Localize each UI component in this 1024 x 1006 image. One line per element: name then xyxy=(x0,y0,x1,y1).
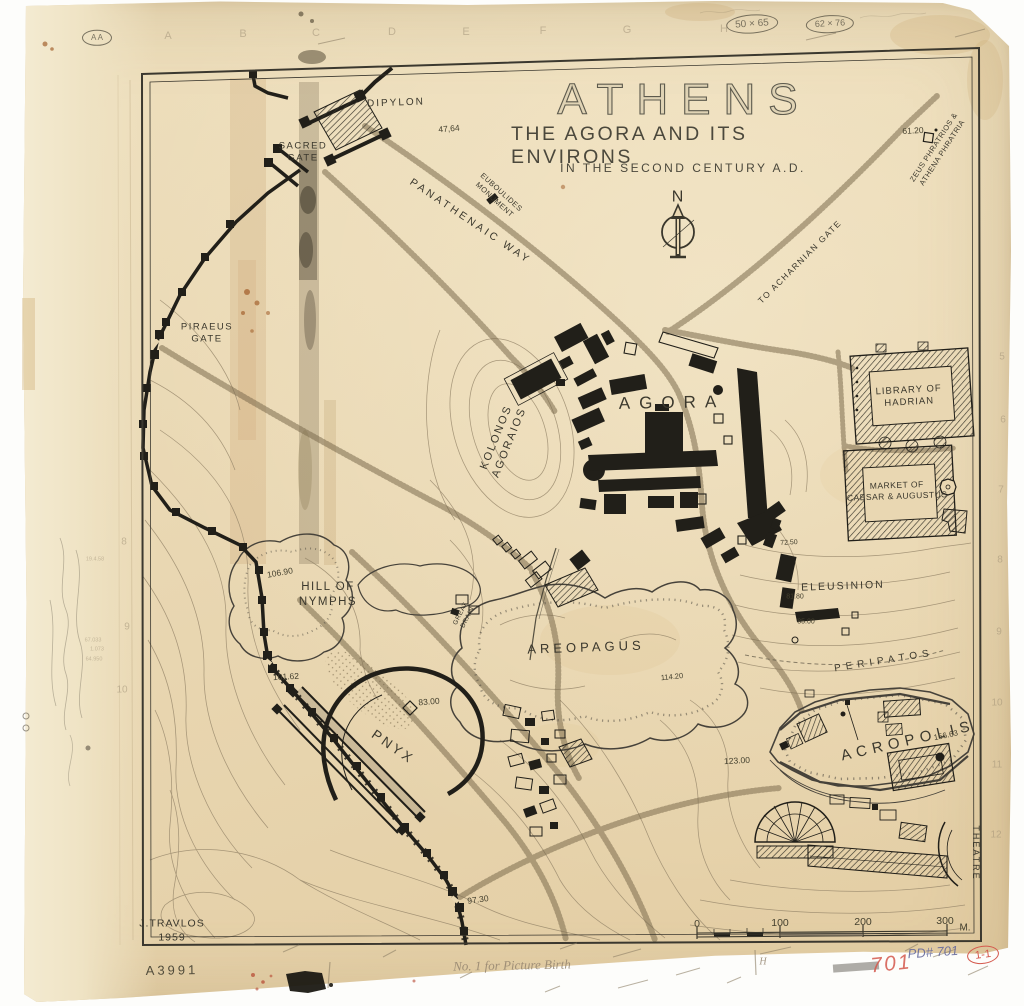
map-subtitle-2: IN THE SECOND CENTURY A.D. xyxy=(560,161,806,175)
scanned-map-sheet: ATHENS THE AGORA AND ITS ENVIRONS IN THE… xyxy=(0,0,1024,1006)
map-title: ATHENS xyxy=(557,75,810,125)
elevation-item-4: 83.00 xyxy=(418,696,440,709)
margin-number-item-7: 12 xyxy=(990,829,1001,842)
margin-number-item-10: 10 xyxy=(116,684,127,697)
margin-number-item-5: 10 xyxy=(991,697,1002,710)
margin-number-item-2: 7 xyxy=(998,484,1004,497)
margin-number-item-9: 9 xyxy=(124,621,130,634)
elevation-item-7: 85.00 xyxy=(797,617,815,626)
label-piraeus-gate: PIRAEUS GATE xyxy=(181,322,233,347)
label-library-of-hadrian: LIBRARY OF HADRIAN xyxy=(875,383,942,411)
pencil-note-item-2: No. 1 for Picture Birth xyxy=(453,957,571,976)
elevation-item-1: 61.20 xyxy=(902,125,924,137)
elevation-item-6: 81.80 xyxy=(786,592,804,601)
catalog-blue-item-0: PD# 701 xyxy=(907,943,959,963)
pencil-note-item-3: H xyxy=(759,956,766,969)
catalog-red-item-0: 701 xyxy=(869,948,913,979)
margin-number-item-8: 8 xyxy=(121,536,127,549)
margin-number-item-0: 5 xyxy=(999,351,1005,364)
grid-letter-item-2: C xyxy=(312,26,320,40)
elevation-item-0: 47,64 xyxy=(438,123,460,136)
north-arrow xyxy=(662,203,694,257)
label-theatre: THEATRE xyxy=(969,825,981,880)
grid-letter-item-0: A xyxy=(164,29,171,43)
scale-tick-item-1: 100 xyxy=(771,917,789,931)
margin-number-item-4: 9 xyxy=(996,626,1002,639)
elevation-item-5: 72.50 xyxy=(780,538,798,548)
scale-bar xyxy=(697,924,947,939)
elevation-item-3: 101.62 xyxy=(273,671,300,683)
label-dipylon: DIPYLON xyxy=(367,95,425,110)
grid-letter-item-7: H xyxy=(720,22,728,36)
grid-letter-item-1: B xyxy=(239,27,246,41)
grid-letter-item-5: F xyxy=(540,24,547,38)
scale-tick-item-0: 0 xyxy=(694,918,700,932)
margin-number-item-6: 11 xyxy=(992,759,1002,772)
scale-tick-item-3: 300 xyxy=(936,915,954,929)
pencil-figure-item-3: 64.950 xyxy=(86,656,103,663)
scale-tick-item-2: 200 xyxy=(854,916,872,930)
grid-letter-item-3: D xyxy=(388,25,396,39)
label-hill-of-nymphs: HILL OF NYMPHS xyxy=(299,580,357,610)
map-content: ATHENS THE AGORA AND ITS ENVIRONS IN THE… xyxy=(0,0,1024,1006)
label-sacred-gate: SACRED GATE xyxy=(279,141,328,166)
label-agora: AGORA xyxy=(619,391,726,415)
label-credit: J.TRAVLOS 1959 xyxy=(139,917,204,944)
scale-unit-item-0: M. xyxy=(959,922,970,935)
margin-number-item-1: 6 xyxy=(1000,414,1006,427)
margin-number-item-3: 8 xyxy=(997,554,1003,567)
pencil-figure-item-2: 1.073 xyxy=(90,646,104,653)
pencil-figure-item-1: 67.033 xyxy=(85,637,102,644)
label-north-letter: N xyxy=(672,188,685,209)
elevation-item-9: 123.00 xyxy=(724,755,751,767)
label-eleusinion: ELEUSINION xyxy=(801,579,885,596)
grid-letter-item-4: E xyxy=(462,25,469,39)
archive-number-item-0: A3991 xyxy=(146,962,199,980)
pencil-figure-item-0: 19.4.58 xyxy=(86,556,104,563)
south-slope-buildings xyxy=(755,795,962,886)
label-market-of-caesar-augustus: MARKET OF CAESAR & AUGUSTUS xyxy=(846,478,947,504)
grid-letter-item-6: G xyxy=(623,23,632,37)
